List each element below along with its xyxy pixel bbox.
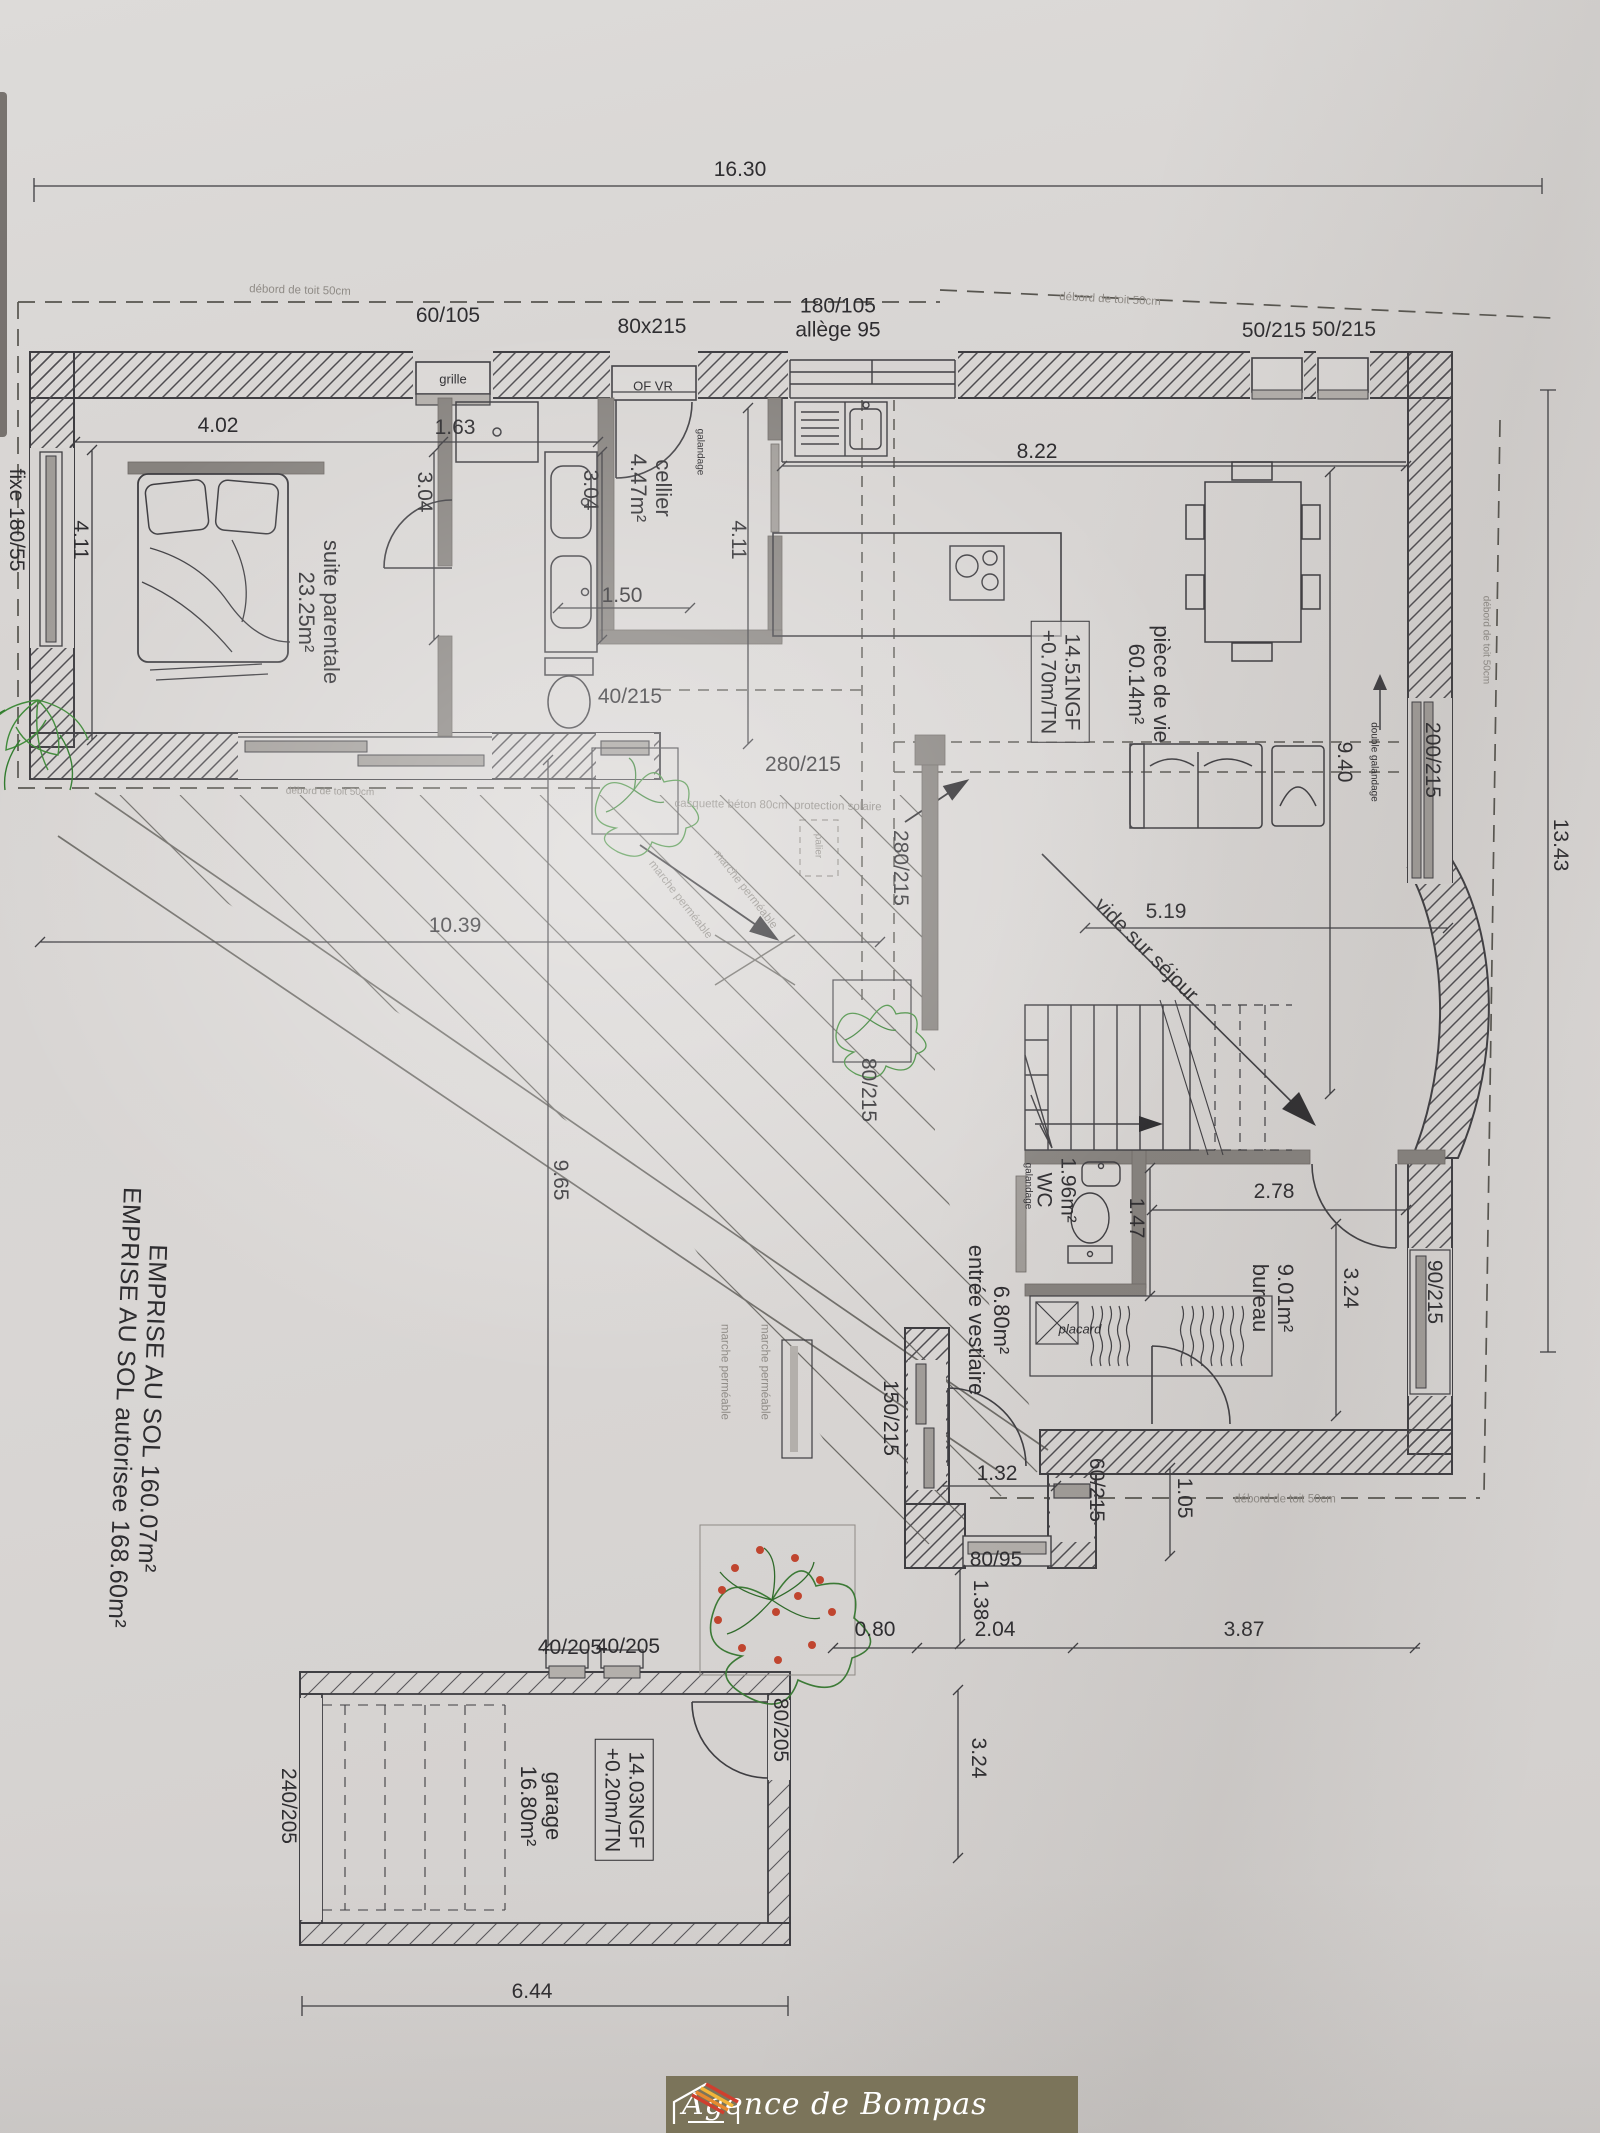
dim-6-44: 6.44 — [512, 1980, 553, 2004]
galandage-a: galandage — [694, 429, 705, 476]
sofa — [1130, 744, 1324, 828]
win-90-215: 90/215 — [1422, 1260, 1446, 1324]
dim-1-47: 1.47 — [1124, 1198, 1148, 1239]
dim-0-80: 0.80 — [855, 1618, 896, 1642]
room-garage: garage 16.80m² — [515, 1766, 565, 1847]
deb-toit-3: débord de toit 50cm — [1480, 596, 1491, 684]
dim-2-78: 2.78 — [1254, 1180, 1295, 1204]
kitchen-island — [773, 533, 1061, 636]
dim-4-11-a: 4.11 — [68, 520, 92, 559]
garage-door-tracks — [322, 1705, 505, 1910]
win-80x215: 80x215 — [618, 315, 687, 339]
of-vr-note: OF VR — [633, 380, 673, 395]
win-200-215: 200/215 — [1420, 722, 1444, 798]
win-180-105: 180/105 allège 95 — [795, 294, 880, 341]
dim-1-05: 1.05 — [1172, 1478, 1196, 1519]
room-entree: 6.80m² entrée vestiaire — [963, 1245, 1013, 1395]
dim-1-38: 1.38 — [968, 1580, 992, 1621]
palier-note: palier — [812, 834, 823, 858]
placard-note: placard — [1059, 1323, 1102, 1338]
agency-logo: Agence de Bompas — [666, 2076, 1078, 2133]
door-80-205: 80/205 — [768, 1698, 792, 1762]
dim-13-43: 13.43 — [1548, 819, 1572, 872]
kitchen — [773, 398, 1406, 636]
win-60-215: 60/215 — [1084, 1458, 1108, 1522]
room-piece-de-vie: pièce de vie 60.14m² — [1123, 625, 1173, 742]
toilet-suite-parentale — [545, 658, 593, 728]
ngf-garage: 14.03NGF +0.20m/TN — [594, 1739, 653, 1861]
dim-3-24-b: 3.24 — [966, 1738, 990, 1779]
win-280-215-v: 280/215 — [888, 830, 912, 906]
room-bureau: 9.01m² bureau — [1247, 1264, 1297, 1333]
dim-9-65: 9.65 — [548, 1160, 572, 1201]
win-40-205-a: 40/205 — [538, 1636, 602, 1660]
win-40-215: 40/215 — [598, 685, 662, 709]
marche-4: marche perméable — [758, 1324, 771, 1420]
deb-toit-5: débord de toit 50cm — [1234, 1494, 1336, 1507]
bathroom-fixtures — [456, 402, 597, 728]
dim-4-11-b: 4.11 — [726, 520, 750, 559]
win-fixe-180-55: fixe 180/55 — [4, 469, 28, 572]
dim-1-50: 1.50 — [602, 584, 643, 608]
room-suite-parentale: suite parentale 23.25m² — [293, 540, 343, 684]
door-240-205: 240/205 — [276, 1768, 300, 1844]
win-80-215: 80/215 — [856, 1058, 880, 1122]
stairs — [1025, 1000, 1292, 1155]
room-cellier: cellier 4.47m² — [625, 454, 675, 522]
dim-16-30: 16.30 — [714, 158, 767, 182]
garage-side-door — [692, 1702, 768, 1778]
dbl-galandage: double galandage — [1368, 722, 1379, 802]
win-80-95: 80/95 — [970, 1548, 1023, 1572]
dim-8-22: 8.22 — [1017, 440, 1058, 464]
room-wc: 1.96m² WC — [1032, 1157, 1079, 1222]
dim-1-32: 1.32 — [977, 1462, 1018, 1486]
win-280-215-h: 280/215 — [765, 753, 841, 777]
win-40-205-b: 40/205 — [596, 1635, 660, 1659]
dim-10-39: 10.39 — [429, 914, 482, 938]
win-60-105: 60/105 — [416, 304, 480, 328]
paper-edge-shadow — [0, 92, 7, 437]
dim-3-87: 3.87 — [1224, 1618, 1265, 1642]
bureau-door — [1312, 1164, 1396, 1248]
dining-table — [1186, 462, 1320, 661]
dim-4-02: 4.02 — [198, 414, 239, 438]
house-roof-icon — [666, 2076, 758, 2126]
win-50-215-a: 50/215 — [1242, 319, 1306, 343]
win-50-215-b: 50/215 — [1312, 318, 1376, 342]
grille-note: grille — [439, 373, 466, 388]
floor-plan-sheet: 16.3060/105grille80x215OF VR180/105 allè… — [0, 0, 1600, 2133]
dim-3-24-a: 3.24 — [1338, 1268, 1362, 1309]
deb-toit-1: débord de toit 50cm — [249, 283, 351, 299]
win-150-215: 150/215 — [878, 1380, 902, 1456]
dim-9-40: 9.40 — [1332, 742, 1356, 783]
deb-toit-4: débord de toit 50cm — [286, 786, 375, 799]
dim-3-04-a: 3.04 — [412, 472, 436, 513]
bed — [138, 474, 290, 680]
dim-2-04: 2.04 — [975, 1618, 1016, 1642]
hob — [950, 546, 1004, 600]
ngf-main: 14.51NGF +0.70m/TN — [1030, 621, 1089, 743]
marche-3: marche perméable — [718, 1324, 731, 1420]
dim-3-04-b: 3.04 — [578, 470, 602, 511]
dim-5-19: 5.19 — [1146, 900, 1187, 924]
dim-1-63: 1.63 — [435, 416, 476, 440]
